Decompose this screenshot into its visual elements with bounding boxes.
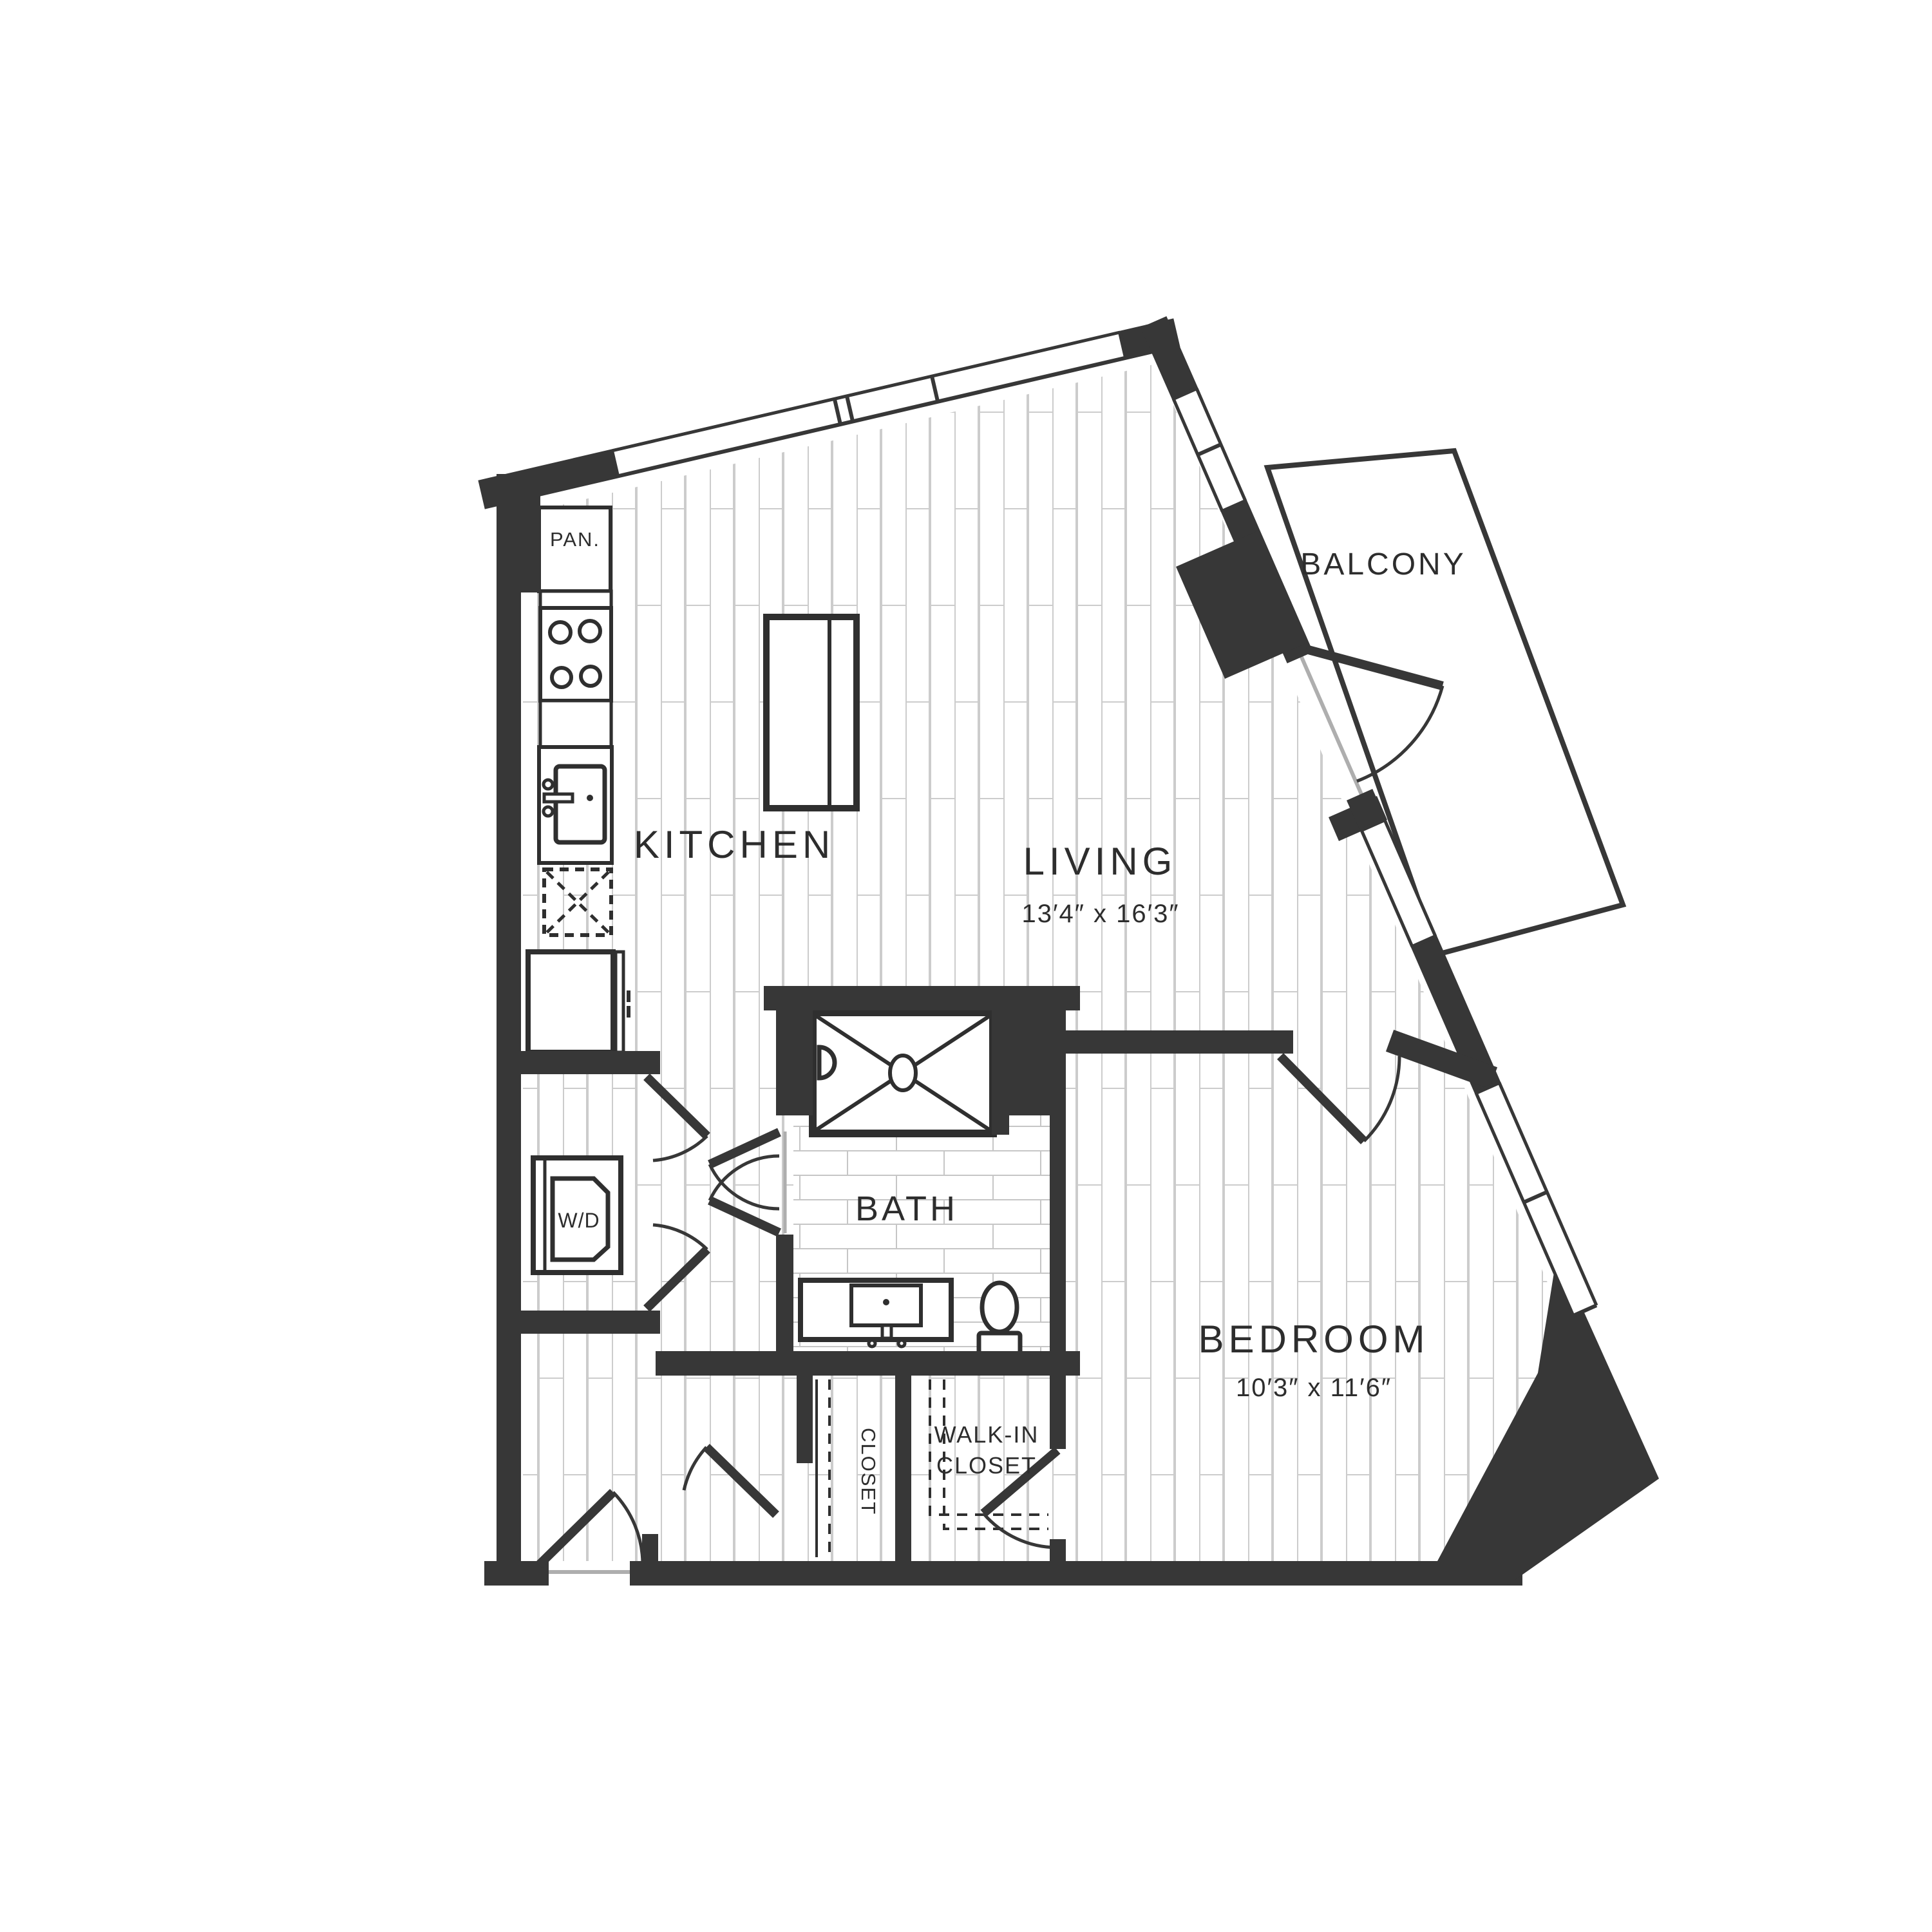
floor-plan: PAN. KITCHEN LIVING 13′4″ x 16′3″ BALCON… <box>0 0 1932 1932</box>
pantry-label: PAN. <box>550 528 600 551</box>
kitchen-island <box>766 617 857 808</box>
kitchen-sink-icon <box>539 747 612 863</box>
wall-closet-west-stub <box>797 1376 813 1463</box>
floor-textures <box>523 364 1623 1561</box>
walkin-label-line1: WALK-IN <box>934 1421 1039 1448</box>
wd-label: W/D <box>558 1209 600 1232</box>
wall-bath-west <box>776 1235 793 1360</box>
wall-closet-divider <box>895 1376 911 1561</box>
living-label: LIVING <box>1023 840 1177 883</box>
wall-bath-ne-block <box>1009 1010 1066 1115</box>
wall-shower-east <box>992 1010 1009 1135</box>
stove-icon <box>540 608 611 701</box>
toilet-icon <box>979 1283 1020 1355</box>
wall-corner-topleft <box>497 482 540 592</box>
living-dims: 13′4″ x 16′3″ <box>1021 900 1179 928</box>
shower-icon <box>799 1012 993 1133</box>
bedroom-label: BEDROOM <box>1198 1318 1429 1361</box>
wall-right-3 <box>1365 808 1373 825</box>
wall-walkin-east-upper <box>1050 1375 1066 1449</box>
walkin-label-line2: CLOSET <box>936 1452 1037 1479</box>
counter-segment-1 <box>540 591 611 608</box>
kitchen-label: KITCHEN <box>634 823 835 866</box>
wall-walkin-east-lower <box>1050 1539 1066 1561</box>
bedroom-dims: 10′3″ x 11′6″ <box>1236 1374 1392 1402</box>
refrigerator-icon <box>528 952 629 1052</box>
bath-label: BATH <box>855 1189 958 1228</box>
bathroom-vanity-icon <box>800 1280 951 1347</box>
wall-bath-east <box>1050 1115 1066 1375</box>
wall-entry-stub <box>642 1534 658 1562</box>
closet-label: CLOSET <box>857 1428 880 1515</box>
counter-segment-2 <box>540 701 611 747</box>
floor-plan-canvas: PAN. KITCHEN LIVING 13′4″ x 16′3″ BALCON… <box>0 0 1932 1932</box>
balcony-label: BALCONY <box>1300 547 1466 582</box>
wall-shower-west <box>776 1010 813 1115</box>
